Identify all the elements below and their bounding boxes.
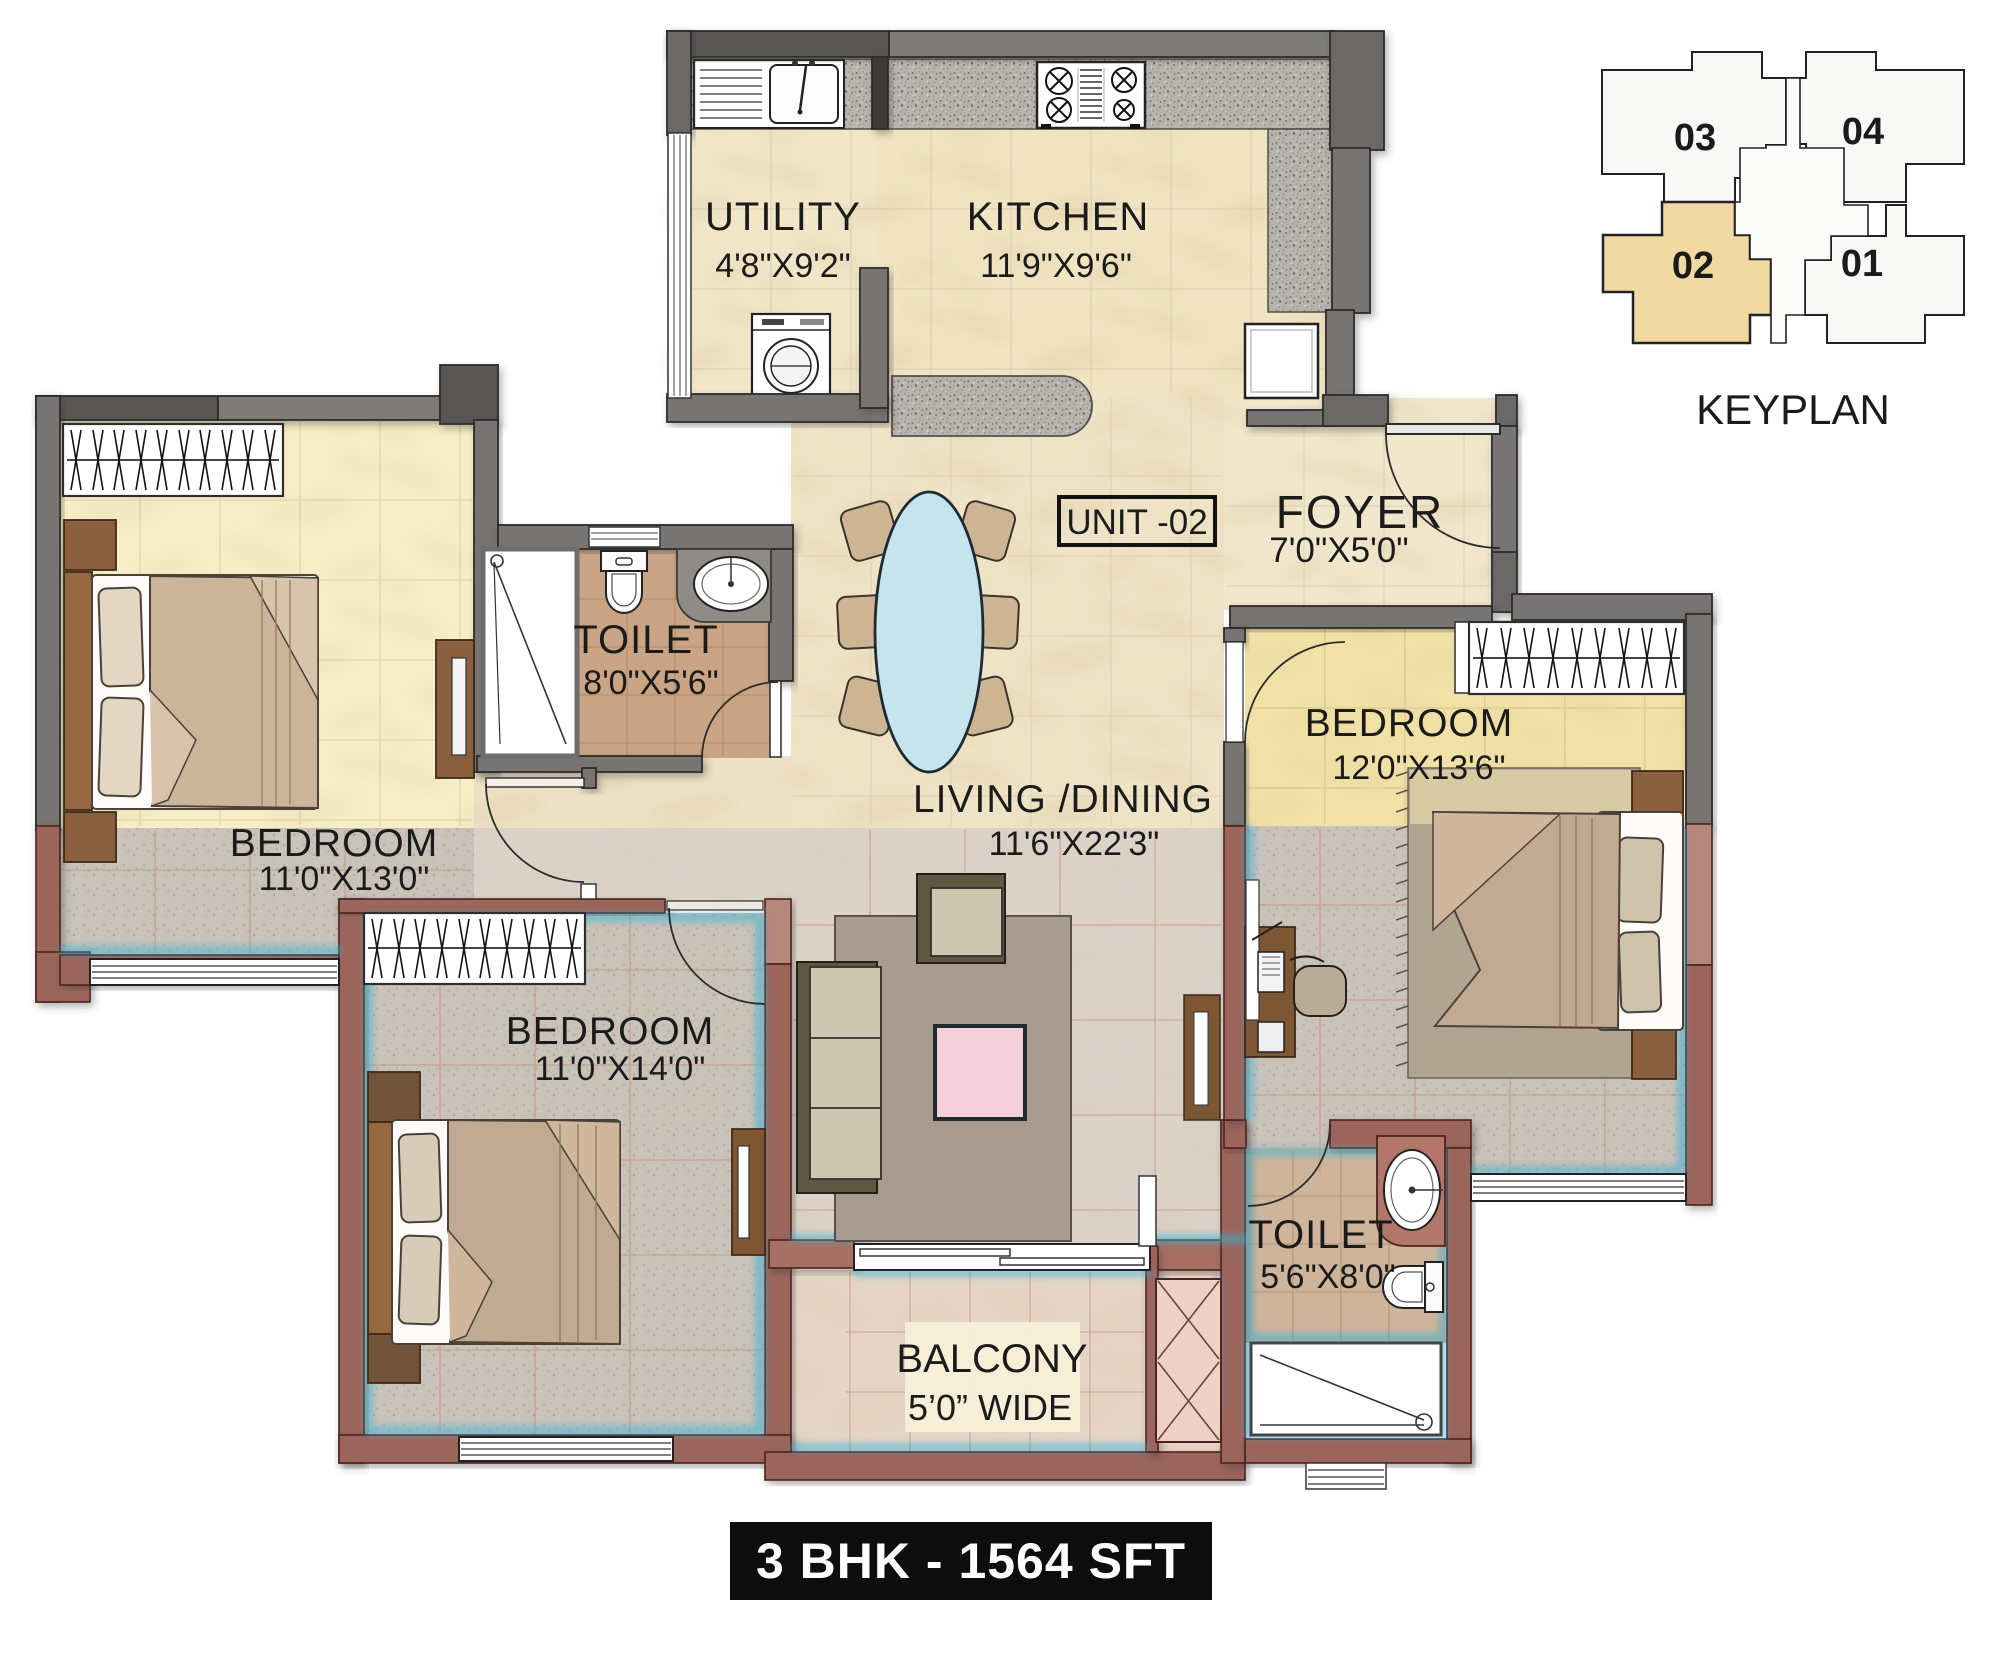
svg-text:5’0” WIDE: 5’0” WIDE [908,1387,1072,1428]
svg-text:11'0"X14'0": 11'0"X14'0" [535,1050,706,1088]
svg-text:4'8"X9'2": 4'8"X9'2" [715,247,850,285]
svg-text:04: 04 [1842,111,1884,153]
svg-text:LIVING /DINING: LIVING /DINING [913,778,1213,821]
svg-text:TOILET: TOILET [1248,1213,1393,1257]
svg-text:02: 02 [1672,245,1714,287]
svg-text:KEYPLAN: KEYPLAN [1696,386,1890,433]
svg-text:UTILITY: UTILITY [705,195,861,239]
svg-text:5'6"X8'0": 5'6"X8'0" [1260,1258,1395,1296]
svg-text:KITCHEN: KITCHEN [967,195,1150,239]
svg-text:3 BHK - 1564 SFT: 3 BHK - 1564 SFT [756,1533,1186,1589]
svg-text:03: 03 [1674,117,1716,159]
svg-text:11'6"X22'3": 11'6"X22'3" [989,825,1160,863]
svg-text:01: 01 [1841,243,1883,285]
svg-text:BEDROOM: BEDROOM [1305,702,1514,745]
svg-text:7'0"X5'0": 7'0"X5'0" [1269,531,1408,570]
svg-text:11'9"X9'6": 11'9"X9'6" [980,247,1132,285]
svg-text:BEDROOM: BEDROOM [230,822,439,865]
svg-text:TOILET: TOILET [573,618,718,662]
svg-text:12'0"X13'6": 12'0"X13'6" [1332,749,1505,787]
svg-text:UNIT -02: UNIT -02 [1066,503,1207,542]
svg-text:8'0"X5'6": 8'0"X5'6" [583,664,718,702]
svg-text:11'0"X13'0": 11'0"X13'0" [259,860,430,898]
svg-text:BEDROOM: BEDROOM [506,1010,715,1053]
svg-text:BALCONY: BALCONY [896,1337,1087,1381]
